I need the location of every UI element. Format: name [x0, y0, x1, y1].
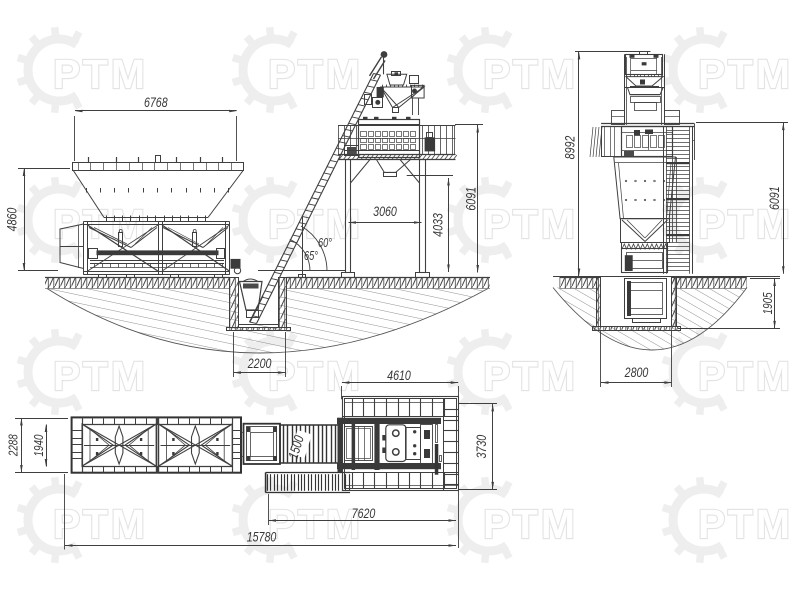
- svg-text:РТМ: РТМ: [53, 501, 148, 547]
- svg-text:7620: 7620: [352, 506, 376, 521]
- svg-text:РТМ: РТМ: [53, 51, 148, 97]
- svg-text:РТМ: РТМ: [698, 501, 793, 547]
- svg-text:РТМ: РТМ: [53, 353, 148, 399]
- svg-text:РТМ: РТМ: [268, 51, 363, 97]
- svg-text:1905: 1905: [761, 292, 775, 315]
- svg-text:1940: 1940: [32, 435, 46, 457]
- svg-text:РТМ: РТМ: [268, 353, 363, 399]
- svg-text:РТМ: РТМ: [483, 201, 578, 247]
- svg-text:РТМ: РТМ: [698, 353, 793, 399]
- svg-text:3060: 3060: [373, 204, 397, 219]
- svg-text:65°: 65°: [304, 249, 318, 263]
- svg-text:3730: 3730: [474, 435, 489, 459]
- svg-text:6768: 6768: [144, 95, 168, 110]
- svg-text:4860: 4860: [5, 207, 20, 231]
- svg-text:РТМ: РТМ: [483, 501, 578, 547]
- svg-text:2288: 2288: [7, 434, 21, 457]
- svg-text:8992: 8992: [563, 135, 578, 159]
- svg-text:РТМ: РТМ: [268, 201, 363, 247]
- svg-text:60°: 60°: [318, 236, 332, 250]
- svg-text:4610: 4610: [387, 368, 411, 383]
- svg-text:РТМ: РТМ: [698, 51, 793, 97]
- svg-text:РТМ: РТМ: [483, 51, 578, 97]
- svg-text:4033: 4033: [431, 213, 446, 237]
- svg-text:15780: 15780: [247, 530, 277, 545]
- svg-text:2800: 2800: [624, 365, 649, 380]
- svg-text:РТМ: РТМ: [268, 501, 363, 547]
- svg-text:6091: 6091: [767, 186, 782, 210]
- svg-text:РТМ: РТМ: [483, 353, 578, 399]
- svg-text:2200: 2200: [247, 356, 272, 371]
- svg-text:6091: 6091: [464, 187, 479, 211]
